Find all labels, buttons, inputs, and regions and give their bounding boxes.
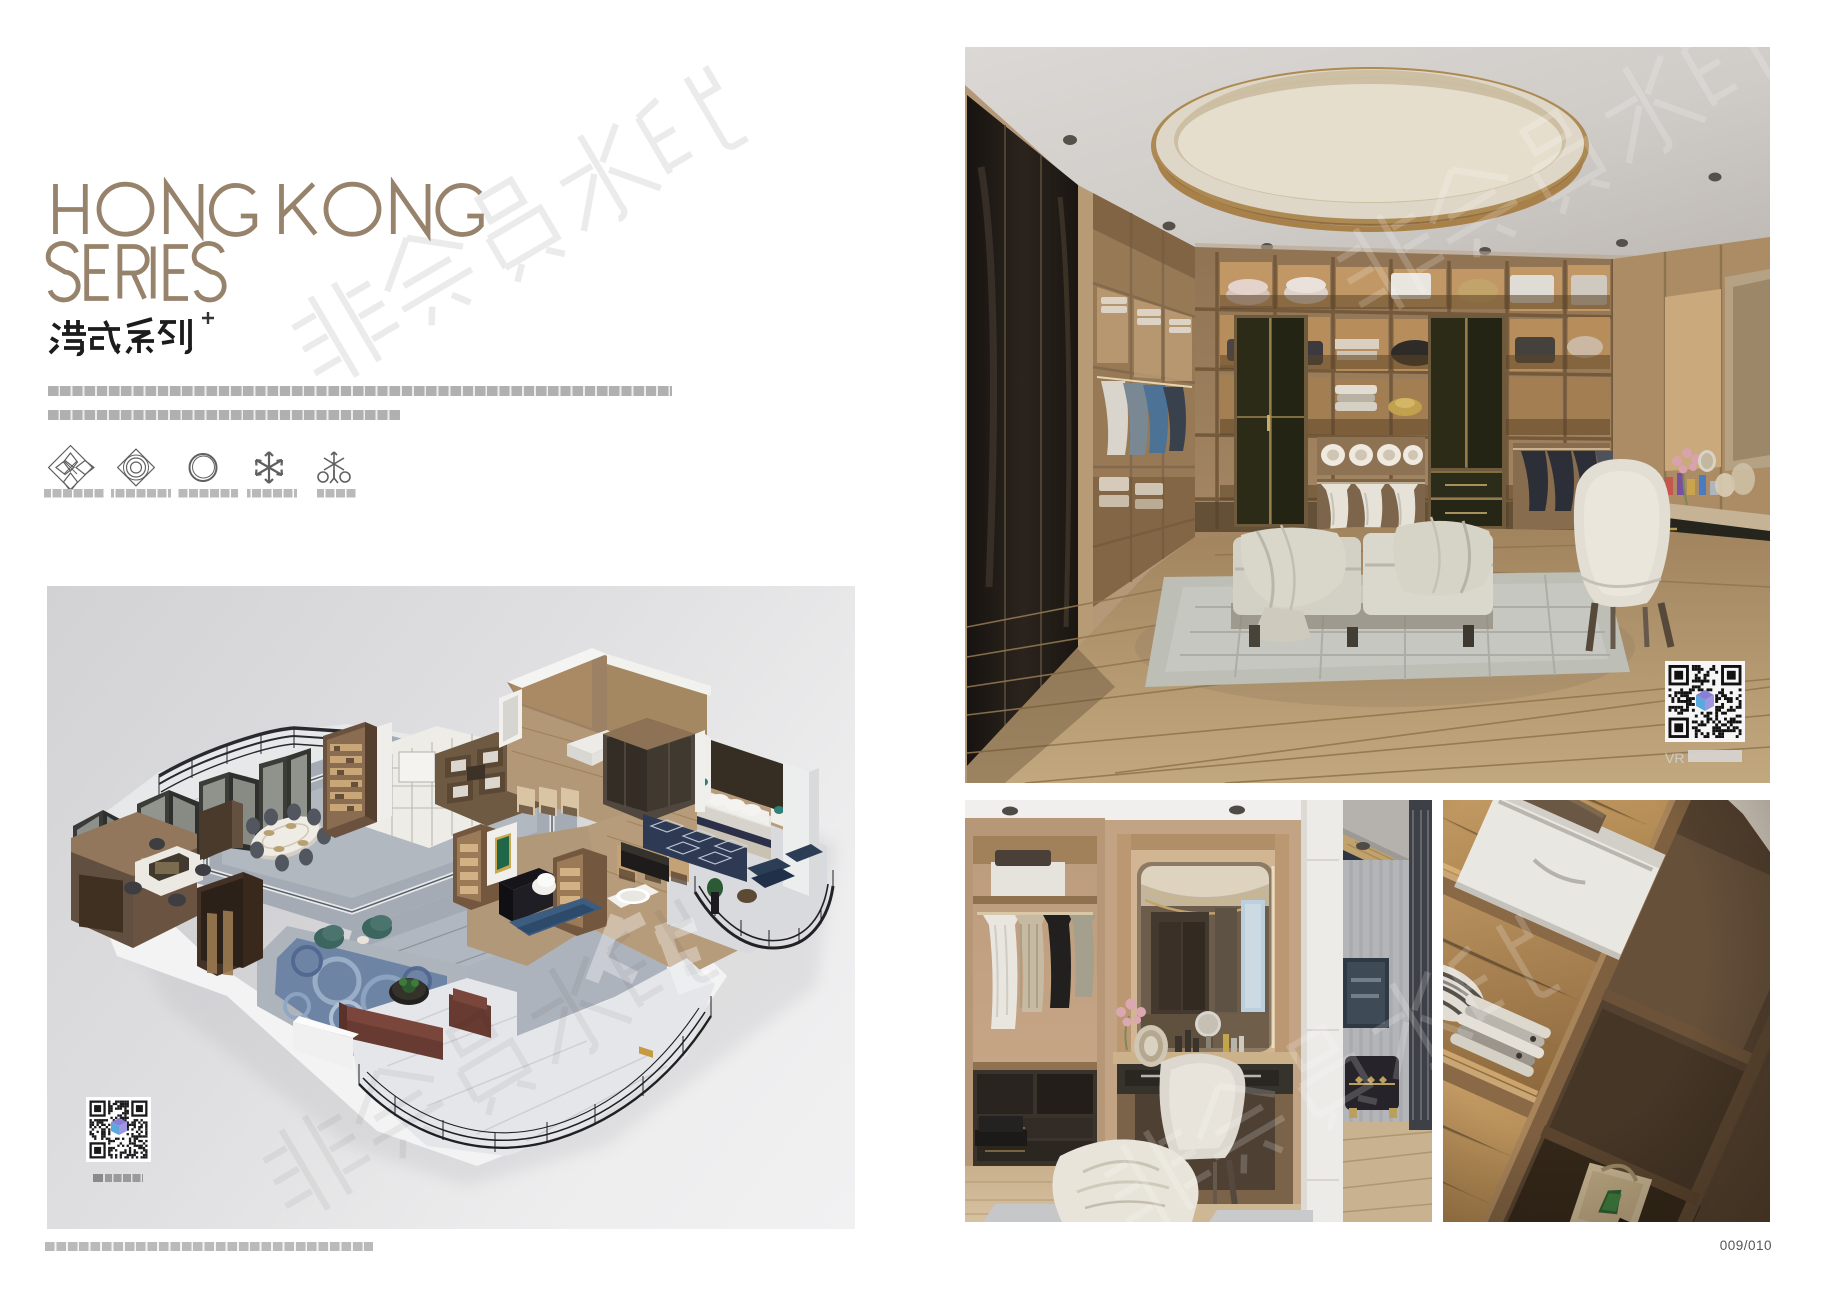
svg-text:VR: VR (1665, 750, 1684, 766)
